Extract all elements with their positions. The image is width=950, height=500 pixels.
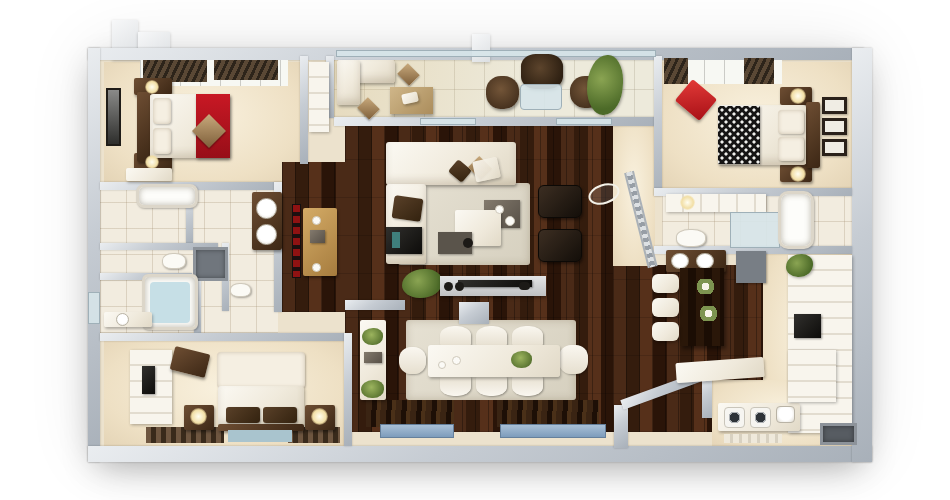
- bedroom2-pillow-a: [778, 110, 804, 134]
- bedroom1-lamp-bottom: [145, 155, 159, 169]
- dining-chair-south-1: [440, 375, 471, 396]
- dining-curtain-a: [366, 400, 454, 427]
- kitchen-bouquet-a: [696, 279, 715, 294]
- living-sofa-dark-pillow: [392, 195, 424, 222]
- living-dining-column: [459, 302, 489, 324]
- living-table-tray: [463, 238, 473, 248]
- media-disc: [519, 282, 530, 290]
- living-armchair-a: [538, 185, 582, 218]
- bath1-sink-b: [256, 224, 277, 245]
- terrace-chair-left: [486, 76, 519, 109]
- entry-red-art: [292, 204, 301, 278]
- bath2-tub-water: [150, 282, 190, 323]
- dining-sideboard-plant-b: [361, 380, 384, 398]
- bath3-sink: [116, 313, 129, 326]
- bedroom2-damask-blanket: [718, 106, 760, 164]
- bedroom3-bench: [228, 430, 292, 442]
- kitchen-sink-b: [696, 253, 714, 269]
- bedroom3-lamp-a: [190, 408, 207, 425]
- bedroom2-west-wall: [654, 56, 662, 196]
- bath1-toilet-b: [230, 283, 251, 297]
- bedroom1-east-wall: [300, 56, 308, 164]
- bath1-shower: [193, 247, 228, 281]
- entry-decor-box: [310, 230, 325, 243]
- dining-plate-a: [452, 356, 461, 365]
- living-table-dot-b: [505, 216, 515, 226]
- bedroom1-wall-art: [106, 88, 121, 146]
- bedroom2-headboard: [806, 102, 820, 168]
- outer-wall-left: [88, 48, 100, 462]
- kitchen-sink-a: [671, 253, 689, 269]
- bath1-sink-a: [256, 198, 277, 219]
- bedroom3-bed-headboard: [217, 352, 305, 388]
- laundry-cabinets: [788, 350, 836, 402]
- living-armchair-b: [538, 229, 582, 262]
- living-dining-wall: [345, 300, 405, 310]
- dining-window-b: [500, 424, 606, 438]
- laundry-west-wall: [702, 376, 712, 418]
- terrace-door-b: [556, 118, 612, 125]
- dining-plate-b: [438, 361, 446, 369]
- bedroom1-pillow-b: [153, 128, 171, 154]
- dining-chair-north-2: [476, 326, 507, 347]
- dining-curtain-b: [497, 400, 599, 427]
- bedroom2-lamp-bottom: [790, 166, 806, 182]
- terrace-bench-b: [337, 60, 360, 105]
- living-side-tv-screen: [392, 232, 400, 248]
- terrace-column: [472, 34, 490, 62]
- bedroom2-lamp-top: [790, 88, 806, 104]
- dining-chair-south-2: [476, 375, 507, 396]
- bedroom1-dresser: [126, 168, 172, 181]
- kitchen-oven: [794, 314, 821, 338]
- bedroom3-north-wall: [100, 333, 348, 341]
- bedroom3-pillow-b: [263, 407, 297, 423]
- bedroom1-pillow-a: [153, 98, 171, 124]
- bedroom1-lamp-top: [145, 80, 159, 94]
- bedroom3-east-wall: [344, 333, 352, 446]
- bedroom2-curtain-a: [664, 58, 688, 84]
- closet-shelves: [309, 62, 329, 132]
- entry-dish-b: [312, 263, 321, 272]
- dining-table: [428, 345, 560, 377]
- bedroom1-headboard: [137, 92, 150, 162]
- dining-sideboard-tray: [364, 352, 382, 363]
- laundry-rug: [724, 434, 782, 443]
- dining-chair-east: [559, 345, 588, 374]
- media-knob-a: [444, 282, 453, 291]
- bedroom3-lamp-b: [311, 408, 328, 425]
- laundry-dryer: [750, 407, 771, 428]
- laundry-sink: [776, 406, 795, 423]
- dining-centerpiece-plant: [511, 351, 532, 368]
- bedroom2-art-frame-c: [822, 139, 847, 156]
- media-knob-b: [455, 282, 464, 291]
- bath1-toilet: [162, 253, 186, 269]
- floor-plan-image: [0, 0, 950, 500]
- bedroom3-pillow-a: [226, 407, 260, 423]
- bedroom2-art-frame-a: [822, 97, 847, 114]
- laundry-washer: [724, 407, 745, 428]
- living-table-dot-a: [495, 205, 504, 214]
- bedroom2-curtain-b: [744, 58, 774, 84]
- bath-right-toilet: [676, 229, 706, 247]
- terrace-glass-table: [520, 84, 562, 110]
- bath1-tub: [136, 184, 198, 208]
- kitchen-floor-mat: [736, 251, 766, 283]
- bedroom1-blind-b: [214, 60, 278, 80]
- kitchen-bar-stool-b: [652, 298, 679, 317]
- bedroom2-art-frame-b: [822, 118, 847, 135]
- dining-chair-north-3: [512, 326, 543, 347]
- entry-dish-a: [312, 216, 321, 225]
- bath-right-tub: [778, 191, 814, 249]
- outer-wall-right: [852, 48, 872, 462]
- bath-window-left: [88, 292, 100, 324]
- bedroom2-pillow-b: [778, 137, 804, 161]
- bedroom3-dresser-tv: [142, 366, 155, 394]
- dining-sideboard-plant-a: [362, 328, 383, 345]
- kitchen-bar-stool-c: [652, 322, 679, 341]
- dining-east-wall-stub: [614, 405, 628, 448]
- bath-right-lamp: [680, 195, 695, 210]
- dining-chair-south-3: [512, 375, 543, 396]
- outer-wall-bottom: [88, 446, 872, 462]
- dining-chair-west: [399, 347, 426, 374]
- kitchen-bouquet-b: [699, 306, 718, 321]
- laundry-dark-mat: [820, 423, 857, 445]
- kitchen-bar-stool-a: [652, 274, 679, 293]
- terrace-door-a: [420, 118, 476, 125]
- dining-chair-north-1: [440, 326, 471, 347]
- bath-right-shower: [730, 212, 780, 248]
- dining-window-a: [380, 424, 454, 438]
